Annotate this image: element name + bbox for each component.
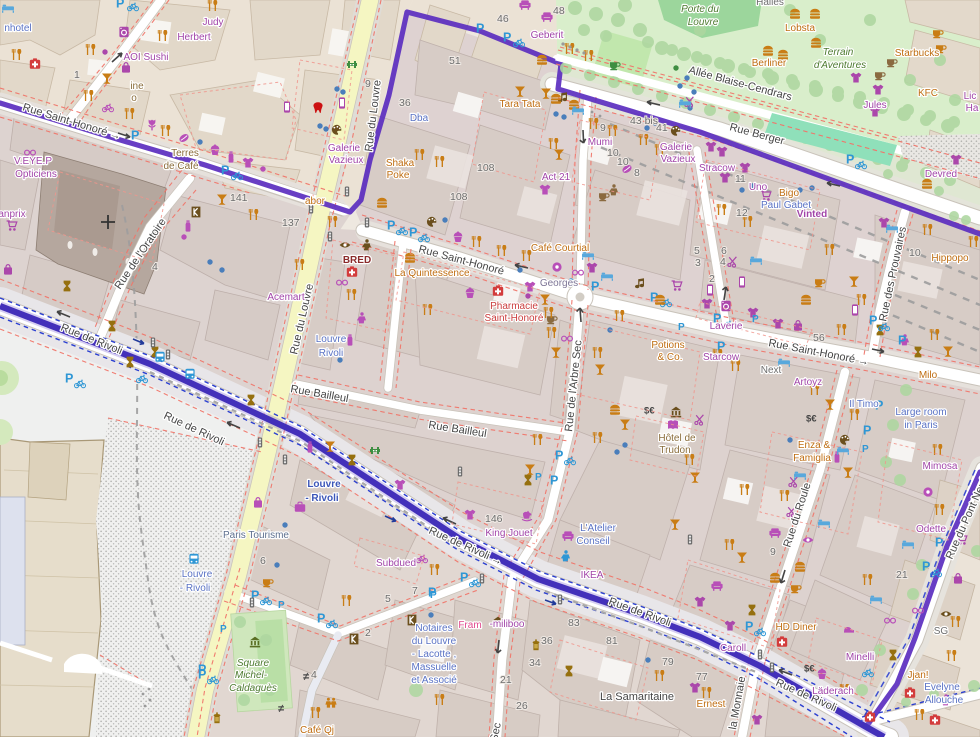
svg-text:Café Qj: Café Qj: [300, 725, 334, 736]
svg-text:P: P: [862, 444, 869, 455]
svg-text:77: 77: [696, 671, 708, 683]
svg-text:Artoyz: Artoyz: [794, 377, 822, 388]
svg-text:d'Aventures: d'Aventures: [814, 60, 866, 71]
svg-text:P: P: [220, 624, 227, 635]
svg-text:Devred: Devred: [925, 169, 957, 180]
svg-text:Geberit: Geberit: [531, 30, 564, 41]
svg-text:4: 4: [311, 669, 317, 681]
svg-text:Evelyne: Evelyne: [924, 682, 960, 693]
svg-text:P: P: [278, 600, 285, 611]
svg-text:La Quintessence: La Quintessence: [394, 268, 469, 279]
svg-text:Stracow: Stracow: [699, 163, 736, 174]
svg-text:Judy: Judy: [202, 17, 223, 28]
svg-text:de Café: de Café: [163, 161, 198, 172]
svg-text:- Rivoli: - Rivoli: [180, 583, 211, 594]
svg-text:L'Atelier: L'Atelier: [580, 523, 616, 534]
svg-text:Michel-: Michel-: [235, 670, 268, 681]
svg-text:in Paris: in Paris: [904, 420, 937, 431]
svg-text:P: P: [678, 322, 685, 333]
svg-text:- Lacotte ,: - Lacotte ,: [412, 649, 456, 660]
svg-text:V.EYE.P: V.EYE.P: [14, 156, 52, 167]
svg-text:2: 2: [709, 273, 715, 285]
svg-text:Mimosa: Mimosa: [922, 461, 957, 472]
svg-text:141: 141: [230, 192, 248, 204]
svg-text:137: 137: [282, 217, 300, 229]
svg-text:Paris Tourisme: Paris Tourisme: [223, 530, 289, 541]
svg-text:4: 4: [720, 256, 726, 268]
svg-text:Starcow: Starcow: [703, 352, 740, 363]
svg-text:8: 8: [634, 167, 640, 179]
svg-text:Jules: Jules: [863, 100, 886, 111]
svg-text:11: 11: [735, 173, 746, 185]
svg-text:Poke: Poke: [387, 170, 410, 181]
svg-text:10: 10: [617, 156, 629, 168]
svg-text:146: 146: [485, 513, 503, 525]
svg-text:6: 6: [260, 555, 266, 567]
svg-text:5: 5: [694, 245, 700, 257]
svg-text:Lic: Lic: [964, 91, 977, 102]
svg-text:La Samaritaine: La Samaritaine: [600, 691, 674, 703]
svg-text:Terrain: Terrain: [823, 47, 854, 58]
svg-text:10: 10: [909, 247, 921, 259]
svg-text:King Jouet: King Jouet: [485, 528, 532, 539]
svg-text:Louvre: Louvre: [307, 479, 341, 490]
svg-text:KFC: KFC: [918, 88, 938, 99]
svg-text:Next: Next: [761, 365, 782, 376]
svg-text:2: 2: [365, 627, 371, 639]
svg-text:Rivoli: Rivoli: [319, 348, 343, 359]
svg-text:46: 46: [497, 13, 509, 25]
svg-text:Massuelle: Massuelle: [411, 662, 456, 673]
svg-text:Louvre: Louvre: [688, 17, 719, 28]
svg-text:3: 3: [695, 257, 701, 269]
svg-text:9: 9: [365, 78, 371, 90]
svg-text:Halles: Halles: [756, 0, 784, 8]
svg-text:48: 48: [553, 5, 565, 17]
svg-text:83: 83: [568, 617, 580, 629]
svg-text:Minelli: Minelli: [846, 652, 874, 663]
svg-text:Louvre: Louvre: [316, 334, 347, 345]
svg-text:79: 79: [662, 656, 674, 668]
svg-text:Ha: Ha: [966, 103, 979, 114]
svg-text:Act 21: Act 21: [542, 172, 571, 183]
svg-text:Potions: Potions: [651, 340, 684, 351]
svg-text:Vinted: Vinted: [797, 209, 827, 220]
svg-text:Famiglia: Famiglia: [793, 453, 831, 464]
svg-text:BRED: BRED: [343, 255, 371, 266]
svg-text:21: 21: [500, 674, 512, 686]
svg-text:anprix: anprix: [0, 209, 26, 220]
svg-text:du Louvre: du Louvre: [412, 636, 457, 647]
svg-text:Uno: Uno: [749, 182, 768, 193]
svg-text:Dba: Dba: [410, 113, 429, 124]
svg-text:Saint-Honoré: Saint-Honoré: [485, 313, 544, 324]
svg-text:56: 56: [813, 332, 825, 344]
svg-text:Caroll: Caroll: [720, 643, 746, 654]
svg-text:Terres: Terres: [171, 148, 199, 159]
svg-text:IKEA: IKEA: [581, 570, 604, 581]
svg-text:108: 108: [450, 191, 468, 203]
svg-text:Acemart: Acemart: [267, 292, 304, 303]
svg-text:Enza &: Enza &: [798, 440, 831, 451]
svg-text:21: 21: [896, 569, 908, 581]
svg-text:Tara Tata: Tara Tata: [500, 99, 541, 110]
svg-text:12: 12: [736, 207, 748, 219]
svg-text:Starbucks: Starbucks: [895, 48, 939, 59]
svg-text:Fram: Fram: [458, 620, 481, 631]
svg-text:HD Diner: HD Diner: [775, 622, 817, 633]
svg-text:Bigo: Bigo: [779, 188, 799, 199]
svg-text:Milo: Milo: [919, 370, 938, 381]
svg-text:Louvre: Louvre: [182, 569, 213, 580]
svg-text:26: 26: [516, 700, 528, 712]
svg-text:7: 7: [412, 585, 418, 597]
svg-text:nhotel: nhotel: [4, 23, 31, 34]
svg-text:P: P: [430, 590, 437, 601]
svg-text:P: P: [752, 314, 759, 325]
svg-text:SG: SG: [934, 626, 949, 637]
svg-text:o: o: [131, 93, 137, 104]
svg-text:1: 1: [74, 69, 80, 81]
svg-text:Opticiens: Opticiens: [15, 169, 57, 180]
svg-text:36: 36: [399, 97, 411, 109]
svg-text:9: 9: [770, 546, 776, 558]
svg-text:5: 5: [385, 593, 391, 605]
svg-text:- Rivoli: - Rivoli: [305, 493, 339, 504]
svg-text:≠: ≠: [278, 703, 284, 715]
svg-text:P: P: [535, 472, 542, 483]
svg-text:41: 41: [656, 122, 668, 134]
svg-text:Berliner: Berliner: [752, 58, 787, 69]
svg-text:& Co.: & Co.: [657, 352, 682, 363]
svg-text:4: 4: [152, 261, 158, 273]
svg-text:Galerie: Galerie: [328, 143, 361, 154]
svg-text:Ernest: Ernest: [697, 699, 726, 710]
svg-text:Hippopo: Hippopo: [931, 253, 969, 264]
svg-text:Vazieux: Vazieux: [661, 154, 696, 165]
svg-text:Laverie: Laverie: [710, 321, 743, 332]
svg-text:Vazieux: Vazieux: [329, 155, 364, 166]
svg-text:9: 9: [600, 122, 606, 134]
svg-text:Large room: Large room: [895, 407, 946, 418]
svg-text:Hôtel de: Hôtel de: [658, 433, 696, 444]
svg-text:51: 51: [449, 55, 461, 67]
svg-text:Square: Square: [237, 658, 270, 669]
svg-text:Subdued: Subdued: [376, 558, 416, 569]
svg-text:ine: ine: [130, 81, 144, 92]
svg-text:et Associé: et Associé: [411, 675, 457, 686]
svg-text:108: 108: [477, 162, 495, 174]
svg-text:34: 34: [529, 657, 541, 669]
svg-text:Lobsta: Lobsta: [785, 23, 815, 34]
svg-text:Conseil: Conseil: [576, 536, 609, 547]
svg-text:Notaires: Notaires: [415, 623, 452, 634]
svg-text:AOI Sushi: AOI Sushi: [123, 52, 168, 63]
svg-text:Trudon: Trudon: [659, 445, 690, 456]
svg-text:Pharmacie: Pharmacie: [490, 301, 538, 312]
svg-text:Herbert: Herbert: [177, 32, 211, 43]
svg-text:Porte du: Porte du: [681, 4, 719, 15]
svg-text:36: 36: [541, 635, 553, 647]
svg-text:Il Timo: Il Timo: [849, 399, 879, 410]
svg-text:Galerie: Galerie: [660, 142, 693, 153]
svg-text:43 bis: 43 bis: [630, 115, 658, 127]
svg-text:81: 81: [606, 635, 618, 647]
svg-text:Shaka: Shaka: [386, 158, 415, 169]
svg-text:≠: ≠: [303, 671, 309, 683]
svg-text:Jjan!: Jjan!: [907, 670, 928, 681]
svg-text:Georges: Georges: [540, 278, 578, 289]
svg-text:Läderach: Läderach: [812, 686, 854, 697]
svg-text:Allouche: Allouche: [925, 695, 964, 706]
svg-text:Odette: Odette: [916, 524, 946, 535]
svg-text:Café Courtial: Café Courtial: [531, 243, 589, 254]
svg-text:Caldaguès: Caldaguès: [229, 683, 277, 694]
svg-text:-miliboo: -miliboo: [489, 619, 524, 630]
svg-text:abor: abor: [305, 196, 326, 207]
